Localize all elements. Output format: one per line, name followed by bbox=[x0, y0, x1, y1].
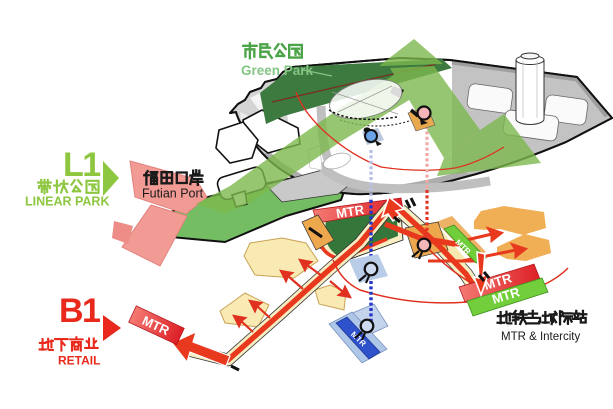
svg-text:L1: L1 bbox=[63, 146, 100, 184]
svg-text:MTR & Intercity: MTR & Intercity bbox=[501, 331, 580, 343]
svg-text:Futian Port: Futian Port bbox=[142, 187, 204, 201]
svg-text:RETAIL: RETAIL bbox=[58, 354, 100, 368]
svg-text:B1: B1 bbox=[59, 292, 100, 330]
svg-text:Green Park: Green Park bbox=[241, 63, 314, 78]
svg-text:LINEAR PARK: LINEAR PARK bbox=[25, 195, 110, 209]
